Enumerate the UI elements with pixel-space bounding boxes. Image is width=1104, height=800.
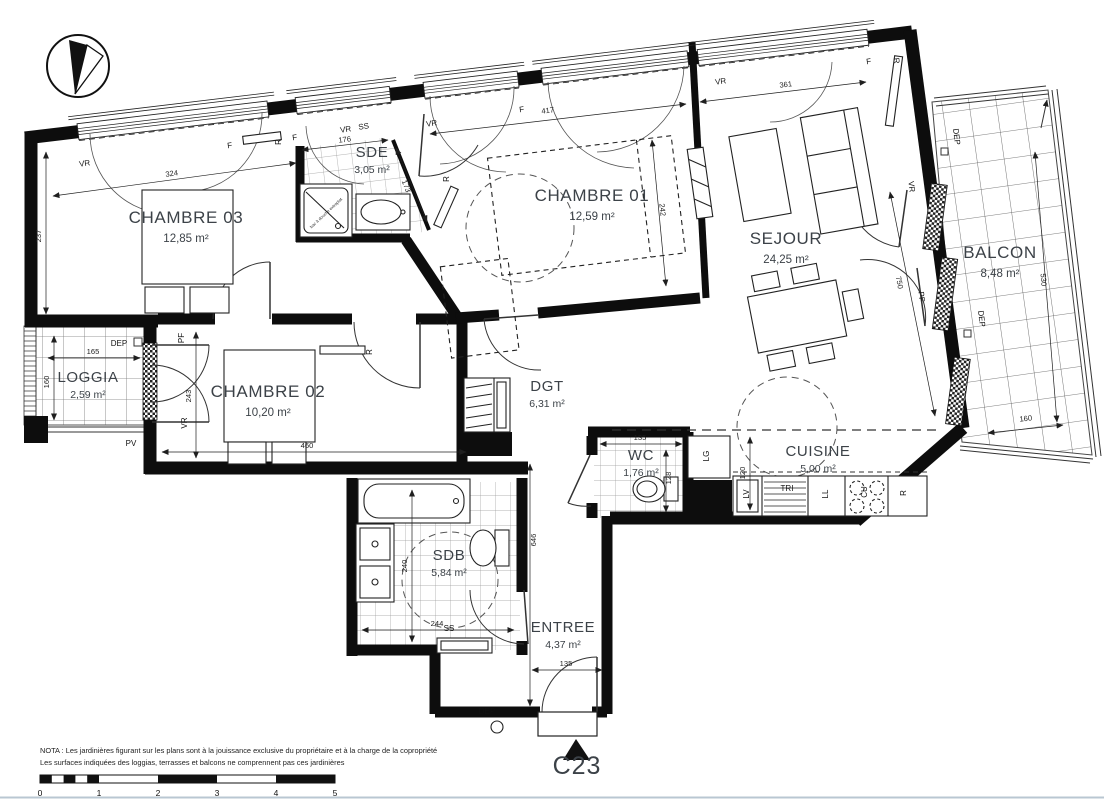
room-name-chambre03: CHAMBRE 03: [129, 208, 244, 227]
dimension-value: 128: [664, 472, 673, 485]
dimension-value: 160: [42, 376, 51, 389]
room-area-chambre01: 12,59 m²: [569, 211, 615, 223]
dimension-value: 530: [1038, 273, 1048, 286]
sdb-double-sink: [356, 524, 394, 602]
dimension-value: 242: [657, 203, 667, 217]
room-area-loggia: 2,59 m²: [70, 389, 106, 401]
tv-unit: [687, 147, 713, 219]
wall-label-cu: CU: [860, 486, 869, 498]
room-name-wc: WC: [628, 447, 654, 464]
scale-tick: 5: [333, 788, 338, 798]
floor-plan-drawing: 3242371761734173612427505301601651602434…: [0, 0, 1104, 800]
misc-text-layer: 012345bac à douche extraplat: [38, 196, 344, 798]
room-name-cuisine: CUISINE: [785, 443, 850, 460]
dimension-value: 460: [301, 441, 314, 450]
unit-label: C23: [527, 752, 627, 781]
dimension-value: 237: [34, 230, 43, 243]
wall-label-pv: PV: [126, 439, 137, 448]
entry-threshold: [538, 712, 597, 736]
room-area-chambre03: 12,85 m²: [163, 233, 209, 245]
room-area-cuisine: 5,00 m²: [800, 463, 836, 475]
room-area-chambre02: 10,20 m²: [245, 407, 291, 419]
room-label-layer: CHAMBRE 0312,85 m²SDE3,05 m²CHAMBRE 0112…: [57, 144, 1036, 651]
floor-plan-page: 3242371761734173612427505301601651602434…: [0, 0, 1104, 800]
room-name-entree: ENTREE: [531, 619, 595, 636]
dimension-value: 243: [184, 390, 193, 403]
kitchen-counter: [733, 476, 927, 516]
wall-label-lv: LV: [742, 489, 751, 499]
dimension-value: 240: [400, 560, 409, 573]
window-chambre03: [68, 92, 277, 141]
dimension-value: 135: [560, 659, 573, 668]
dimension-value: 361: [779, 79, 793, 89]
dgt-closet: [464, 378, 510, 432]
wall-label-vr: VR: [180, 417, 189, 428]
dimension-value: 160: [1019, 413, 1033, 423]
scale-tick: 3: [215, 788, 220, 798]
window-sde: [286, 78, 399, 116]
coffee-table: [729, 128, 791, 221]
sdb-toilet: [470, 530, 509, 566]
wall-label-vr: VR: [426, 118, 438, 128]
sde-sink: [356, 194, 410, 230]
wall-label-vr: VR: [906, 181, 916, 193]
wall-label-ll: LL: [821, 489, 830, 498]
room-area-sde: 3,05 m²: [354, 164, 390, 176]
wall-label-dep: DEP: [479, 707, 495, 716]
wall-label-r: R: [899, 490, 908, 496]
wall-label-vr: VR: [79, 158, 91, 168]
dimension-value: 165: [87, 347, 100, 356]
dimension-value: 120: [738, 467, 747, 480]
room-area-sejour: 24,25 m²: [763, 254, 809, 266]
dimension-value: 750: [894, 275, 905, 289]
wall-label-f: F: [519, 105, 525, 115]
room-name-sejour: SEJOUR: [750, 229, 823, 248]
wall-label-pf: PF: [177, 333, 186, 343]
dep-drain: [491, 721, 503, 733]
room-name-chambre02: CHAMBRE 02: [211, 382, 326, 401]
wall-label-f: F: [292, 133, 298, 143]
room-name-dgt: DGT: [530, 378, 563, 395]
wall-label-r: R: [365, 349, 374, 355]
room-area-wc: 1,76 m²: [623, 467, 659, 479]
sofa: [800, 108, 878, 234]
dimension-value: 244: [431, 619, 444, 628]
wall-label-dep: DEP: [111, 339, 127, 348]
dimension-line: [430, 104, 686, 134]
scale-bar: [40, 775, 335, 783]
wall-label-r: R: [274, 139, 283, 145]
dimension-value: 646: [529, 534, 538, 547]
dimension-value: 176: [338, 134, 352, 144]
room-name-balcon: BALCON: [963, 243, 1037, 262]
room-area-sdb: 5,84 m²: [431, 567, 467, 579]
scale-tick: 4: [274, 788, 279, 798]
window-chambre01-b: [532, 42, 697, 86]
wall-label-tri: TRI: [781, 484, 794, 493]
room-area-entree: 4,37 m²: [545, 639, 581, 651]
room-name-loggia: LOGGIA: [57, 369, 118, 386]
bathtub: [358, 479, 470, 523]
dining-table: [744, 256, 870, 372]
room-area-balcon: 8,48 m²: [981, 268, 1020, 280]
wall-label-vr: VR: [715, 76, 727, 86]
wall-label-ss: SS: [358, 121, 370, 131]
scale-tick: 0: [38, 788, 43, 798]
room-name-sde: SDE: [356, 144, 389, 161]
dimension-value: 324: [165, 168, 179, 179]
wall-label-f: F: [866, 57, 872, 67]
room-area-dgt: 6,31 m²: [529, 398, 565, 410]
wall-label-vr: VR: [340, 124, 352, 134]
wall-label-lg: LG: [702, 451, 711, 462]
north-arrow-icon: [47, 35, 109, 97]
scale-tick: 2: [156, 788, 161, 798]
room-name-sdb: SDB: [433, 547, 466, 564]
dimension-value: 417: [541, 105, 555, 115]
wall-label-pf: PF: [916, 291, 926, 302]
towel-rail-niche: [437, 638, 492, 653]
window-sejour: [688, 20, 877, 67]
wall-label-ss: SS: [444, 624, 455, 633]
window-chambre01-a: [414, 62, 527, 100]
windows: [68, 20, 877, 141]
dimension-value: 135: [634, 433, 647, 442]
room-name-chambre01: CHAMBRE 01: [535, 186, 650, 205]
scale-tick: 1: [97, 788, 102, 798]
wall-label-r: R: [442, 176, 451, 182]
wall-label-f: F: [227, 141, 233, 151]
